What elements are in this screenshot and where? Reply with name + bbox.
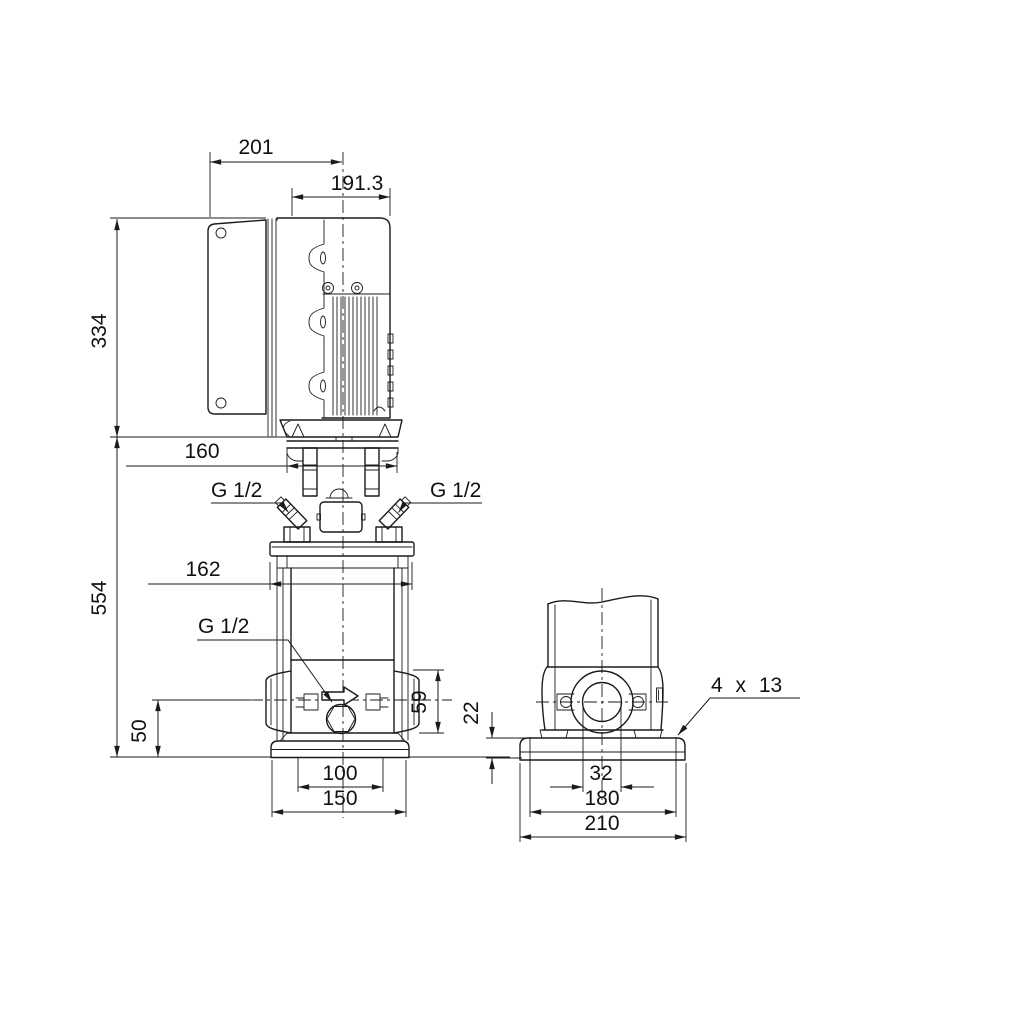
shaft-dome [330,489,348,498]
head-bolt-right [376,527,402,542]
cover-screw-hole-top [216,228,226,238]
nameplate-tab [657,688,663,702]
vent-plug-right [379,495,412,529]
dim-plate-thickness: 22 [460,701,556,784]
baseplate-side [271,741,409,758]
pump-base [266,660,419,741]
chamber-stack [277,568,408,740]
base-block-end [540,667,663,738]
callout-g12-right: G 1/2 [399,479,483,513]
gauge-plug-right [366,694,388,710]
callout-label-g12-drain: G 1/2 [198,615,249,638]
pump-dimensional-drawing: 201 191.3 334 554 160 [0,0,1024,1024]
foot-left [540,730,568,738]
dim-label-32: 32 [589,762,612,785]
callout-g12-drain: G 1/2 [197,615,332,702]
dim-label-191-3: 191.3 [331,172,384,195]
callout-label-g12-left: G 1/2 [211,479,262,502]
head-bolt-left [284,527,310,542]
stool-leg-right [365,448,379,496]
cover-screw-hole-bottom [216,398,226,408]
port-flange-left [266,671,291,733]
coupling-window [320,502,362,532]
dim-label-150: 150 [322,787,357,810]
dim-label-22: 22 [460,701,483,724]
end-view: 22 4 x 13 32 180 210 [460,588,800,842]
dim-width-top: 201 [210,136,342,217]
control-box-cover [208,219,276,436]
dim-height-port: 50 [128,700,250,757]
callout-label-g12-right: G 1/2 [430,479,481,502]
dim-label-162: 162 [185,558,220,581]
fan-cover-adapter [280,420,402,448]
dim-height-motor: 334 [88,218,287,437]
vent-slot [374,407,385,411]
callout-label-4x13: 4 x 13 [711,674,782,697]
foot-right [634,730,662,738]
baseplate-end [520,738,685,760]
dim-width-motor: 191.3 [292,172,390,216]
dim-width-flange: 162 [148,558,412,590]
motor-drive-housing [277,218,393,418]
side-view: 201 191.3 334 554 160 [88,136,510,818]
centerlines-side [250,152,452,818]
pump-head-flange [270,542,414,568]
stool-leg-left [303,448,317,496]
gauge-plug-left [296,694,318,710]
dim-height-base: 59 [408,670,444,733]
dim-label-334: 334 [88,313,111,348]
dim-label-59: 59 [408,690,431,713]
dim-label-50: 50 [128,719,151,742]
dim-label-160: 160 [184,440,219,463]
dim-label-100: 100 [322,762,357,785]
dim-label-210: 210 [584,812,619,835]
dim-label-201: 201 [238,136,273,159]
terminal-screws [323,283,363,294]
cable-gland-bumps [309,220,324,418]
drawing-canvas: 201 191.3 334 554 160 [0,0,1024,1024]
dim-label-180: 180 [584,787,619,810]
dim-label-554: 554 [88,580,111,615]
heat-sink-fins [323,294,390,415]
drain-plug [327,705,356,734]
dim-width-coupling: 160 [126,440,397,473]
callout-mounting-holes: 4 x 13 [678,674,800,735]
vent-plug-left [274,495,307,529]
